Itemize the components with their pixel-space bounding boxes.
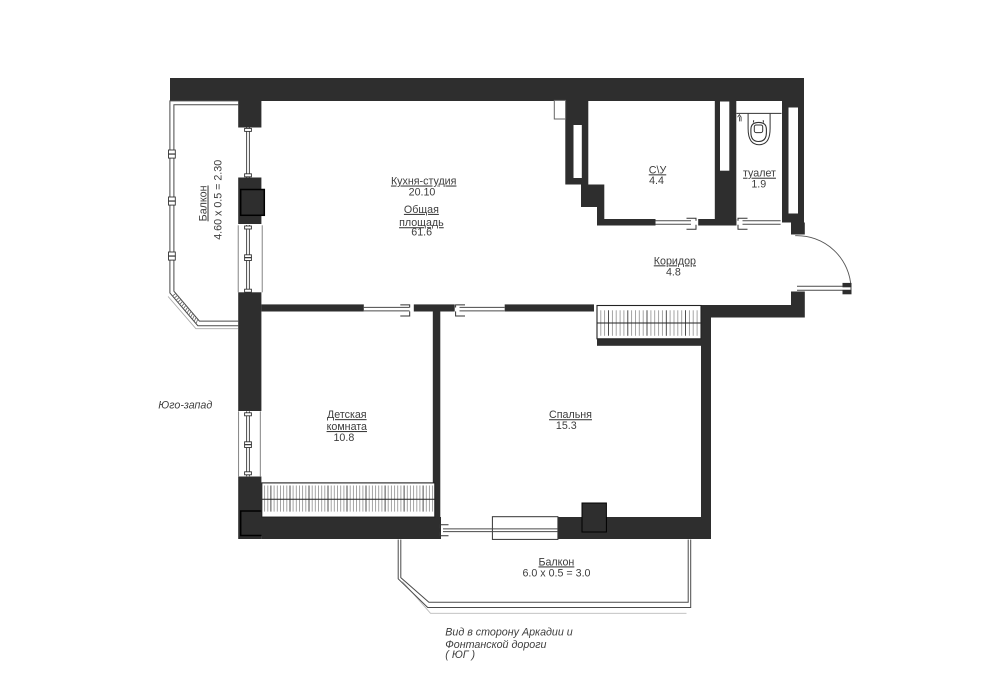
svg-text:4.60 x 0.5 = 2.30: 4.60 x 0.5 = 2.30 [213, 160, 225, 240]
svg-text:15.3: 15.3 [556, 420, 577, 432]
svg-text:4.8: 4.8 [666, 267, 681, 279]
svg-text:Общая: Общая [404, 204, 439, 216]
svg-text:( ЮГ ): ( ЮГ ) [445, 649, 475, 661]
svg-text:Вид в сторону Аркадии и: Вид в сторону Аркадии и [445, 626, 572, 638]
svg-text:Юго-запад: Юго-запад [158, 399, 212, 411]
svg-text:Детская: Детская [327, 409, 367, 421]
svg-text:Балкон: Балкон [198, 185, 210, 221]
svg-text:20.10: 20.10 [409, 187, 436, 199]
svg-text:Балкон: Балкон [538, 556, 574, 568]
svg-text:4.4: 4.4 [649, 175, 664, 187]
svg-text:Коридор: Коридор [654, 255, 696, 267]
svg-text:6.0 x 0.5 = 3.0: 6.0 x 0.5 = 3.0 [522, 568, 590, 580]
svg-text:61.6: 61.6 [411, 227, 432, 239]
svg-text:10.8: 10.8 [333, 432, 354, 444]
svg-text:1.9: 1.9 [751, 179, 766, 191]
